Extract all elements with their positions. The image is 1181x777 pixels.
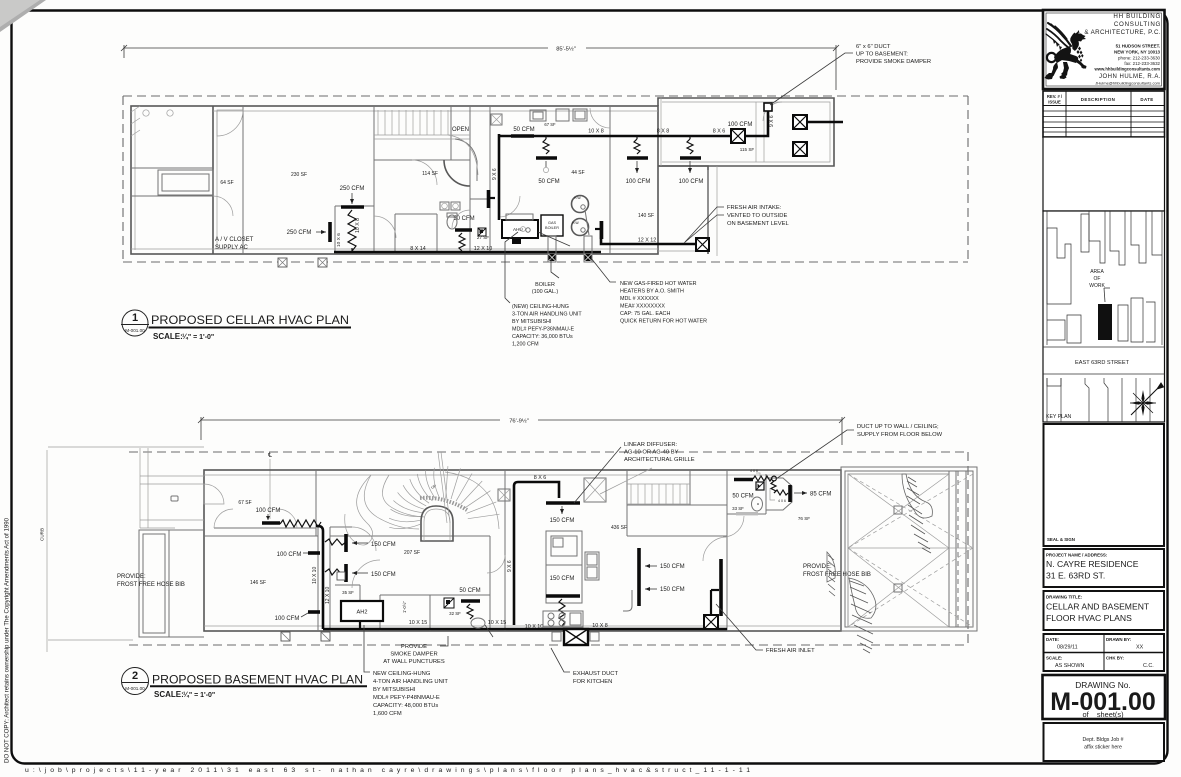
svg-text:9 X 6: 9 X 6	[492, 168, 498, 180]
svg-text:12 X 12: 12 X 12	[638, 238, 657, 244]
svg-text:H.W.: H.W.	[574, 196, 581, 200]
svg-text:& ARCHITECTURE, P.C.: & ARCHITECTURE, P.C.	[1084, 29, 1161, 36]
svg-text:HH BUILDING: HH BUILDING	[1113, 13, 1161, 20]
svg-text:PROVIDE SMOKE DAMPER: PROVIDE SMOKE DAMPER	[856, 59, 931, 65]
svg-text:50 CFM: 50 CFM	[538, 179, 559, 185]
svg-text:207 SF: 207 SF	[404, 550, 420, 556]
svg-text:10 X 15: 10 X 15	[409, 620, 428, 626]
svg-text:44 SF: 44 SF	[571, 170, 584, 176]
svg-text:50 CFM: 50 CFM	[513, 127, 534, 133]
svg-text:of sheet(s): of sheet(s)	[1082, 710, 1123, 719]
svg-text:76 SF: 76 SF	[798, 516, 810, 521]
svg-text:1,600 CFM: 1,600 CFM	[373, 711, 402, 717]
svg-text:SCALE:: SCALE:	[153, 332, 183, 341]
svg-text:(100 GAL.): (100 GAL.)	[532, 289, 559, 295]
svg-text:33 SF: 33 SF	[732, 506, 744, 511]
svg-text:10 X 6: 10 X 6	[336, 233, 342, 247]
svg-text:250 CFM: 250 CFM	[287, 230, 312, 236]
svg-text:MDL# PEFY-P36NMAU-E: MDL# PEFY-P36NMAU-E	[512, 327, 575, 333]
svg-text:AREA: AREA	[1090, 269, 1104, 275]
svg-text:(NEW) CEILING-HUNG: (NEW) CEILING-HUNG	[512, 304, 569, 310]
svg-text:12 X 10: 12 X 10	[474, 246, 493, 252]
svg-text:OPEN: OPEN	[452, 127, 469, 133]
svg-text:LINEAR DIFFUSER:: LINEAR DIFFUSER:	[624, 442, 678, 448]
svg-text:114 SF: 114 SF	[422, 171, 438, 177]
svg-text:OF: OF	[1094, 276, 1101, 282]
svg-text:FLOOR HVAC PLANS: FLOOR HVAC PLANS	[1046, 613, 1132, 623]
svg-text:150 CFM: 150 CFM	[371, 542, 396, 548]
svg-text:C.C.: C.C.	[1143, 663, 1154, 669]
svg-text:10 X 10: 10 X 10	[312, 567, 318, 584]
svg-text:AS SHOWN: AS SHOWN	[1055, 663, 1084, 669]
svg-text:¼" = 1'-0": ¼" = 1'-0"	[183, 691, 215, 699]
svg-text:DATE: DATE	[1140, 97, 1153, 102]
svg-text:BOILER: BOILER	[535, 282, 555, 288]
svg-text:50 CFM: 50 CFM	[732, 494, 753, 500]
svg-text:ARCHITECTURAL GRILLE: ARCHITECTURAL GRILLE	[624, 457, 695, 463]
svg-text:50 CFM: 50 CFM	[459, 588, 480, 594]
svg-text:10 X 10: 10 X 10	[525, 624, 544, 630]
svg-text:EXHAUST DUCT: EXHAUST DUCT	[573, 671, 618, 677]
svg-text:146 SF: 146 SF	[250, 580, 266, 586]
svg-text:32 SF: 32 SF	[449, 611, 461, 616]
svg-text:CURB: CURB	[40, 528, 45, 541]
svg-text:100 CFM: 100 CFM	[626, 179, 651, 185]
svg-text:DUCT UP TO WALL / CEILING;: DUCT UP TO WALL / CEILING;	[857, 424, 939, 430]
svg-text:67 SF: 67 SF	[238, 500, 251, 506]
svg-text:8 X 14: 8 X 14	[410, 246, 426, 252]
svg-text:436 SF: 436 SF	[611, 525, 627, 531]
svg-text:85'-5½": 85'-5½"	[556, 46, 576, 53]
svg-text:CELLAR AND BASEMENT: CELLAR AND BASEMENT	[1046, 602, 1150, 612]
svg-text:4-TON AIR HANDLING UNIT: 4-TON AIR HANDLING UNIT	[373, 679, 448, 685]
svg-text:FRESH AIR INLET: FRESH AIR INLET	[766, 648, 815, 654]
svg-text:GAS: GAS	[548, 221, 556, 225]
svg-text:DATE:: DATE:	[1046, 637, 1060, 642]
svg-text:4 X 6: 4 X 6	[778, 499, 786, 503]
svg-text:ON BASEMENT LEVEL: ON BASEMENT LEVEL	[727, 221, 790, 227]
svg-text:51 HUDSON STREET.: 51 HUDSON STREET.	[1116, 44, 1160, 49]
svg-text:35 SF: 35 SF	[342, 590, 354, 595]
svg-text:ISSUE: ISSUE	[1048, 100, 1061, 105]
svg-text:100 CFM: 100 CFM	[679, 179, 704, 185]
svg-text:UP TO BASEMENT:: UP TO BASEMENT:	[856, 52, 908, 58]
svg-text:8 X 6: 8 X 6	[534, 475, 547, 481]
svg-text:115 SF: 115 SF	[740, 147, 755, 152]
svg-text:WORK: WORK	[1089, 283, 1105, 289]
svg-text:A / V CLOSET: A / V CLOSET	[215, 237, 254, 243]
svg-text:100 CFM: 100 CFM	[256, 508, 281, 514]
svg-text:150 CFM: 150 CFM	[550, 576, 575, 582]
svg-text:85 CFM: 85 CFM	[810, 492, 831, 498]
svg-text:4 X 6: 4 X 6	[750, 469, 758, 473]
svg-text:DRAWING TITLE:: DRAWING TITLE:	[1046, 595, 1083, 600]
svg-text:CHK BY:: CHK BY:	[1106, 656, 1125, 661]
svg-text:9 X 6: 9 X 6	[769, 115, 775, 127]
svg-text:MEA# XXXXXXXX: MEA# XXXXXXXX	[620, 304, 665, 310]
svg-text:1: 1	[132, 312, 138, 324]
svg-text:100 CFM: 100 CFM	[275, 616, 300, 622]
svg-text:PROPOSED BASEMENT HVAC PLAN: PROPOSED BASEMENT HVAC PLAN	[152, 673, 363, 687]
svg-text:AG-10 OR AG-40 BY: AG-10 OR AG-40 BY	[624, 450, 679, 456]
svg-text:MDL # XXXXXX: MDL # XXXXXX	[620, 296, 659, 302]
svg-text:100 CFM: 100 CFM	[728, 122, 753, 128]
svg-text:250 CFM: 250 CFM	[340, 186, 365, 192]
svg-text:℄: ℄	[267, 453, 272, 459]
svg-text:10 X 8: 10 X 8	[588, 129, 604, 135]
svg-text:M-001.00: M-001.00	[125, 328, 145, 333]
svg-text:2: 2	[132, 670, 138, 682]
svg-text:VENTED TO OUTSIDE: VENTED TO OUTSIDE	[727, 213, 787, 219]
svg-text:REV. # /: REV. # /	[1047, 94, 1063, 99]
svg-text:8 X 6: 8 X 6	[713, 129, 726, 135]
svg-text:150 CFM: 150 CFM	[660, 564, 685, 570]
svg-text:DO NOT COPY: Architect retains: DO NOT COPY: Architect retains ownership…	[4, 517, 11, 763]
svg-text:100 CFM: 100 CFM	[277, 552, 302, 558]
svg-text:JHulme@hhbuildingconsultants.c: JHulme@hhbuildingconsultants.com	[1095, 81, 1160, 86]
svg-text:76'-9½": 76'-9½"	[509, 418, 529, 425]
svg-text:67 SF: 67 SF	[544, 122, 556, 127]
svg-text:PROVIDE:: PROVIDE:	[803, 564, 832, 570]
svg-text:10 X 8: 10 X 8	[355, 218, 361, 233]
svg-text:DRAWN BY:: DRAWN BY:	[1106, 637, 1132, 642]
svg-text:31 E. 63RD ST.: 31 E. 63RD ST.	[1046, 571, 1105, 581]
svg-text:JOHN HULME, R.A.: JOHN HULME, R.A.	[1099, 74, 1161, 80]
svg-text:NEW YORK, NY 10013: NEW YORK, NY 10013	[1114, 50, 1161, 55]
svg-text:150 CFM: 150 CFM	[371, 572, 396, 578]
svg-text:64 SF: 64 SF	[220, 180, 233, 186]
svg-text:150 CFM: 150 CFM	[660, 587, 685, 593]
svg-text:CONSULTING: CONSULTING	[1114, 21, 1161, 28]
svg-text:8 X 8: 8 X 8	[657, 129, 670, 135]
svg-text:SMOKE DAMPER: SMOKE DAMPER	[390, 652, 437, 658]
svg-text:MDL# PEFY-P48NMAU-E: MDL# PEFY-P48NMAU-E	[373, 695, 440, 701]
svg-text:H.W.: H.W.	[572, 221, 579, 225]
svg-text:HEATERS BY A.O. SMITH: HEATERS BY A.O. SMITH	[620, 289, 684, 295]
svg-text:¼" = 1'-0": ¼" = 1'-0"	[182, 333, 214, 341]
svg-text:www.hhbuildingconsultants.com: www.hhbuildingconsultants.com	[1094, 67, 1161, 72]
svg-text:SCALE:: SCALE:	[1046, 656, 1063, 661]
svg-text:N. CAYRE RESIDENCE: N. CAYRE RESIDENCE	[1046, 559, 1139, 569]
svg-text:PROVIDE: PROVIDE	[401, 644, 427, 650]
svg-text:QUICK RETURN FOR HOT WATER: QUICK RETURN FOR HOT WATER	[620, 319, 707, 325]
svg-text:150 CFM: 150 CFM	[550, 518, 575, 524]
svg-text:NEW CEILING-HUNG: NEW CEILING-HUNG	[373, 671, 431, 677]
svg-text:EAST 63RD STREET: EAST 63RD STREET	[1075, 360, 1130, 366]
svg-text:AH2: AH2	[357, 610, 368, 616]
svg-text:SUPPLY AC: SUPPLY AC	[215, 245, 248, 251]
svg-text:1,200 CFM: 1,200 CFM	[512, 342, 539, 348]
svg-text:M-001.00: M-001.00	[125, 686, 145, 691]
svg-text:PROJECT NAME / ADDRESS:: PROJECT NAME / ADDRESS:	[1046, 553, 1108, 558]
svg-text:SCALE:: SCALE:	[154, 690, 184, 699]
svg-text:140 SF: 140 SF	[638, 213, 654, 219]
svg-text:phone: 212-233-3630: phone: 212-233-3630	[1118, 56, 1161, 61]
svg-text:10 X 15: 10 X 15	[488, 620, 507, 626]
svg-text:NEW GAS-FIRED HOT WATER: NEW GAS-FIRED HOT WATER	[620, 281, 697, 287]
svg-text:3-TON AIR HANDLING UNIT: 3-TON AIR HANDLING UNIT	[512, 312, 582, 318]
svg-text:Dept. Bldgs Job #: Dept. Bldgs Job #	[1083, 737, 1124, 743]
svg-text:fax: 212-233-3632: fax: 212-233-3632	[1124, 61, 1160, 66]
svg-text:SEAL & SIGN: SEAL & SIGN	[1047, 537, 1075, 542]
svg-text:FROST FREE HOSE BIB: FROST FREE HOSE BIB	[803, 572, 871, 578]
svg-text:08/29/11: 08/29/11	[1057, 645, 1078, 651]
svg-text:PROPOSED CELLAR HVAC PLAN: PROPOSED CELLAR HVAC PLAN	[151, 313, 349, 327]
svg-text:FRESH AIR INTAKE:: FRESH AIR INTAKE:	[727, 205, 782, 211]
svg-text:CAP: 75 GAL. EACH: CAP: 75 GAL. EACH	[620, 311, 670, 317]
svg-text:BY MITSUBISHI: BY MITSUBISHI	[512, 319, 551, 325]
svg-text:BY MITSUBISHI: BY MITSUBISHI	[373, 687, 416, 693]
svg-text:DESCRIPTION: DESCRIPTION	[1081, 97, 1115, 102]
svg-text:SUPPLY FROM FLOOR BELOW: SUPPLY FROM FLOOR BELOW	[857, 432, 943, 438]
svg-text:FOR KITCHEN: FOR KITCHEN	[573, 679, 612, 685]
svg-text:KEY PLAN: KEY PLAN	[1046, 414, 1072, 420]
svg-text:CAPACITY: 48,000 BTUs: CAPACITY: 48,000 BTUs	[373, 703, 438, 709]
svg-text:9 X 6: 9 X 6	[507, 560, 513, 572]
svg-text:FROST FREE HOSE BIB: FROST FREE HOSE BIB	[117, 582, 185, 588]
svg-text:affix sticker here: affix sticker here	[1084, 745, 1122, 751]
svg-text:10 X 8: 10 X 8	[592, 623, 608, 629]
svg-text:BOILER: BOILER	[545, 226, 559, 230]
svg-text:12 X 10: 12 X 10	[325, 587, 331, 604]
svg-text:XX: XX	[1136, 645, 1144, 651]
svg-text:1'-0½": 1'-0½"	[402, 601, 407, 613]
svg-text:230 SF: 230 SF	[291, 172, 307, 178]
svg-text:CAPACITY: 36,000 BTUs: CAPACITY: 36,000 BTUs	[512, 334, 573, 340]
svg-text:AT WALL PUNCTURES: AT WALL PUNCTURES	[383, 659, 445, 665]
svg-text:6" x 6" DUCT: 6" x 6" DUCT	[856, 44, 891, 50]
svg-text:PROVIDE:: PROVIDE:	[117, 574, 146, 580]
